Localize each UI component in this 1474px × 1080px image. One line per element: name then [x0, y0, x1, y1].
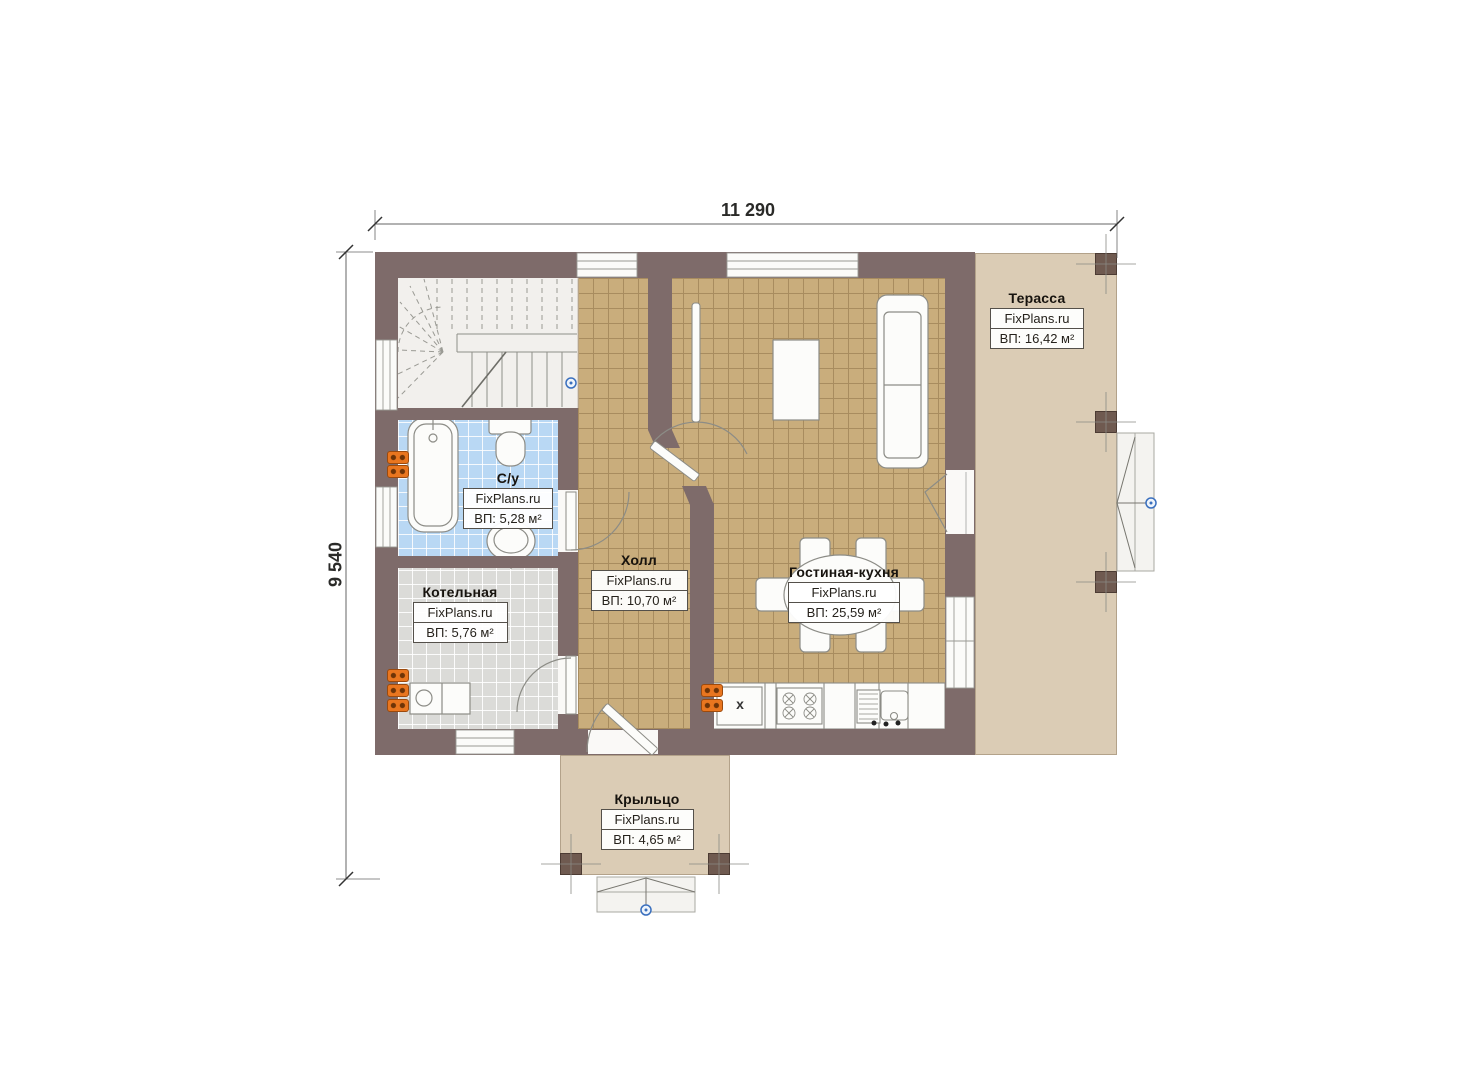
room-area: ВП: 4,65 м²: [602, 829, 693, 849]
dimension-width-label: 11 290: [688, 200, 808, 221]
stairs-marker: [566, 378, 576, 388]
dimension-height-label: 9 540: [326, 525, 347, 605]
room-label-hall: Холл FixPlans.ru ВП: 10,70 м²: [579, 552, 699, 611]
brand-watermark: FixPlans.ru: [464, 489, 552, 508]
room-label-porch: Крыльцо FixPlans.ru ВП: 4,65 м²: [587, 791, 707, 850]
room-label-bathroom: С/у FixPlans.ru ВП: 5,28 м²: [448, 470, 568, 529]
room-label-terrace: Терасса FixPlans.ru ВП: 16,42 м²: [977, 290, 1097, 349]
room-name: Терасса: [977, 290, 1097, 306]
door-boiler: [566, 656, 576, 714]
room-area: ВП: 25,59 м²: [789, 602, 899, 622]
room-area: ВП: 5,76 м²: [414, 622, 507, 642]
brand-watermark: FixPlans.ru: [414, 603, 507, 622]
room-area: ВП: 16,42 м²: [991, 328, 1083, 348]
kitchen-cabinet-mark: x: [726, 696, 754, 712]
door-terrace: [925, 474, 947, 532]
room-name: С/у: [448, 470, 568, 486]
room-name: Котельная: [400, 584, 520, 600]
room-area: ВП: 5,28 м²: [464, 508, 552, 528]
porch-steps: [597, 877, 695, 915]
room-area: ВП: 10,70 м²: [592, 590, 687, 610]
terrace-steps: [1117, 433, 1156, 571]
brand-watermark: FixPlans.ru: [789, 583, 899, 602]
room-label-living: Гостиная-кухня FixPlans.ru ВП: 25,59 м²: [774, 564, 914, 623]
brand-watermark: FixPlans.ru: [991, 309, 1083, 328]
room-name: Крыльцо: [587, 791, 707, 807]
floor-plan: x Терасса FixPlans.ru ВП: 16,42 м² С/у F…: [0, 0, 1474, 1080]
brand-watermark: FixPlans.ru: [592, 571, 687, 590]
brand-watermark: FixPlans.ru: [602, 810, 693, 829]
annotation-layer: [0, 0, 1474, 1080]
room-name: Гостиная-кухня: [774, 564, 914, 580]
room-name: Холл: [579, 552, 699, 568]
room-label-boiler: Котельная FixPlans.ru ВП: 5,76 м²: [400, 584, 520, 643]
